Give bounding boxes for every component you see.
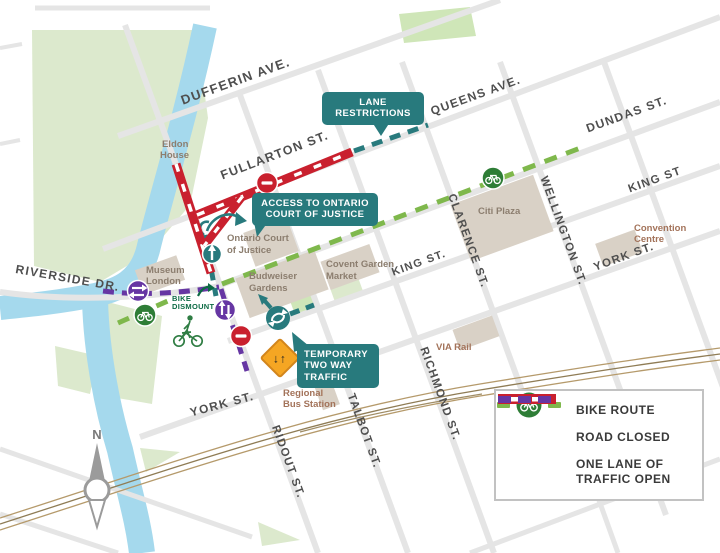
bike-route-icon-park <box>134 304 156 326</box>
legend-label-road-closed: ROAD CLOSED <box>576 430 670 445</box>
callout-lane-restrictions: LANE RESTRICTIONS <box>322 92 424 125</box>
compass-n-label: N <box>92 427 101 442</box>
label-via-rail: VIA Rail <box>436 342 472 353</box>
callout-lane-line1: LANE <box>329 97 417 108</box>
legend-label-bike-route: BIKE ROUTE <box>576 403 655 418</box>
no-entry-king <box>231 326 252 347</box>
walking-cyclist-icon <box>174 315 202 346</box>
label-york-center: YORK ST. <box>188 389 255 420</box>
callout-two-way-line1: TEMPORARY <box>304 349 372 360</box>
label-citi-plaza: Citi Plaza <box>478 206 521 217</box>
callout-access-line2: COURT OF JUSTICE <box>259 209 371 220</box>
compass-needle-south <box>89 500 105 527</box>
callout-two-way-line3: TRAFFIC <box>304 372 372 383</box>
no-entry-fullarton <box>257 173 278 194</box>
map-legend: BIKE ROUTE ROAD CLOSED ONE LANE OF TRAFF… <box>494 389 704 501</box>
label-bike-dismount: BIKEDISMOUNT <box>172 294 215 311</box>
callout-lane-line2: RESTRICTIONS <box>329 108 417 119</box>
label-convention: ConventionCentre <box>634 223 686 245</box>
bike-route-icon-dundas <box>482 167 504 189</box>
purple-two-way-icon-ridout <box>215 300 236 321</box>
label-talbot: TALBOT ST. <box>345 392 383 470</box>
callout-two-way-traffic: TEMPORARY TWO WAY TRAFFIC <box>297 344 379 388</box>
court-access-arrowhead <box>235 212 247 226</box>
callout-court-access: ACCESS TO ONTARIO COURT OF JUSTICE <box>252 193 378 226</box>
road-richmond <box>318 70 494 553</box>
construction-map: ↓↑ N DUFFERIN AVE. QUEENS AVE. DUNDAS ST… <box>0 0 720 553</box>
road-west-stubs <box>0 44 22 144</box>
callout-two-way-line2: TWO WAY <box>304 360 372 371</box>
legend-label-one-lane: ONE LANE OF TRAFFIC OPEN <box>576 457 698 487</box>
road-south-2 <box>0 514 118 553</box>
label-fullarton: FULLARTON ST. <box>219 128 331 182</box>
label-museum: MuseumLondon <box>146 265 185 287</box>
one-way-up-icon <box>203 244 222 264</box>
callout-access-line1: ACCESS TO ONTARIO <box>259 198 371 209</box>
legend-item-one-lane: ONE LANE OF TRAFFIC OPEN <box>506 457 698 487</box>
lane-restriction-segment <box>354 125 428 151</box>
two-way-sign-arrows: ↓↑ <box>273 352 287 366</box>
legend-item-road-closed: ROAD CLOSED <box>506 430 698 445</box>
park-patch-bottom2 <box>258 522 300 546</box>
compass-ring <box>85 478 109 502</box>
label-eldon-house: EldonHouse <box>160 139 189 161</box>
